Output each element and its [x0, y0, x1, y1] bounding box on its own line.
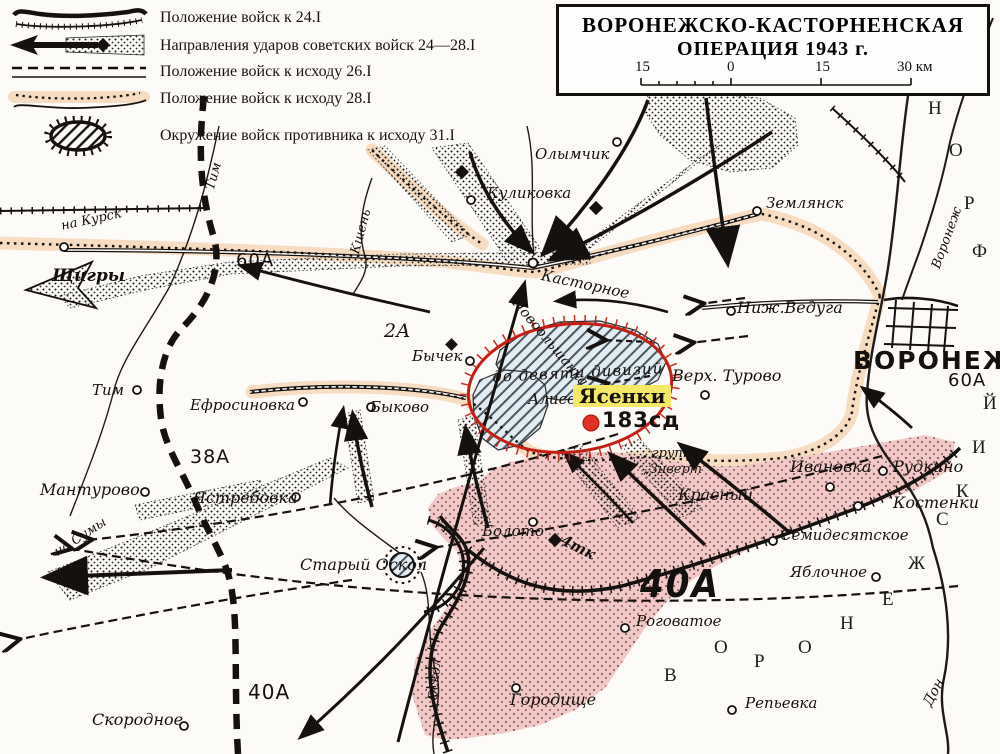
- front-name-letter: О: [949, 141, 963, 160]
- town-label-bychek: Бычек: [412, 349, 462, 364]
- town-label-shchigry: Щигры: [52, 268, 125, 285]
- front-name-letter: С: [936, 510, 949, 529]
- legend-label: Окружение войск противника к исходу 31.I: [154, 127, 455, 145]
- highlight-label-yasenki: Ясенки: [573, 385, 671, 407]
- front-name-letter: Р: [754, 652, 765, 671]
- front-name-letter: Е: [882, 590, 894, 609]
- town-label-yablochnoye: Яблочное: [790, 565, 867, 580]
- scale-tick-label: 0: [727, 59, 735, 76]
- town-label-stary-oskol: Старый Оскол: [300, 557, 427, 573]
- legend-label: Направления ударов советских войск 24—28…: [154, 37, 475, 55]
- symbol-strike-arrows: [6, 32, 154, 60]
- legend-row-strikes: Направления ударов советских войск 24—28…: [6, 32, 475, 60]
- town-label-ivanovka: Ивановка: [790, 459, 871, 475]
- front-name-letter: Н: [928, 99, 942, 118]
- scale-bar-ruler: [619, 77, 939, 91]
- town-label-verh-turovo: Верх. Турово: [672, 368, 781, 384]
- town-label-nizh-veduga: Ниж.Ведуга: [737, 300, 843, 316]
- map-canvas: Олымчик Куликовка Землянск Касторное Щиг…: [0, 0, 1000, 754]
- legend-row-encirclement-31: Окружение войск противника к исходу 31.I: [6, 116, 455, 156]
- scale-tick-label: 30 км: [897, 59, 933, 76]
- town-label-rudkino: Рудкино: [893, 459, 963, 475]
- town-label-zemlyansk: Землянск: [766, 196, 843, 211]
- front-name-letter: О: [798, 638, 812, 657]
- unit-label-gruppa-sievert-2: „Зиверт“: [643, 463, 709, 476]
- army-label-60a-left: 60А: [236, 252, 274, 270]
- town-label-manturovo: Мантурово: [40, 482, 140, 498]
- division-183-marker: [583, 415, 599, 431]
- town-label-alisovo: Алисо: [528, 392, 576, 407]
- town-label-yastrebovka: Ястребовка: [193, 490, 298, 506]
- front-name-letter: Р: [964, 194, 975, 213]
- army-label-38a: 38А: [190, 448, 230, 467]
- legend-label: Положение войск к исходу 28.I: [154, 90, 372, 108]
- scale-tick-label: 15: [815, 59, 830, 76]
- army-label-40a-main: 40А: [640, 565, 720, 603]
- symbol-position-26: [6, 59, 154, 85]
- voronezh-city-grid: [884, 298, 958, 352]
- town-label-efrosinovka: Ефросиновка: [190, 398, 295, 413]
- town-label-semidesyatskoye: Семидесятское: [780, 528, 909, 543]
- city-label-voronezh: ВОРОНЕЖ: [853, 348, 1000, 373]
- town-label-repyevka: Репьевка: [745, 696, 817, 711]
- town-label-kulikovka: Куликовка: [487, 186, 571, 201]
- front-name-letter: Ф: [972, 242, 987, 261]
- river-label-oskol: Оскол: [427, 658, 444, 701]
- town-label-gorodishche: Городище: [510, 692, 596, 708]
- town-label-tim: Тим: [92, 383, 124, 398]
- legend-row-position-26: Положение войск к исходу 26.I: [6, 59, 372, 85]
- scale-bar: 15 0 15 30 км: [619, 59, 939, 93]
- front-name-letter: Й: [983, 394, 997, 413]
- town-label-rogovatoye: Роговатое: [636, 614, 722, 629]
- front-name-letter: Н: [840, 614, 854, 633]
- army-label-40a-left: 40А: [248, 682, 290, 702]
- legend-row-position-28: Положение войск к исходу 28.I: [6, 85, 372, 113]
- map-title-line2: ОПЕРАЦИЯ 1943 г.: [559, 38, 987, 61]
- front-name-letter: В: [664, 666, 677, 685]
- town-label-boloto: Болото: [482, 524, 544, 539]
- town-label-olymchik: Олымчик: [535, 147, 609, 162]
- front-24I-dashed: [159, 96, 238, 754]
- map-title-line1: ВОРОНЕЖСКО-КАСТОРНЕНСКАЯ: [559, 13, 987, 38]
- map-title-box: ВОРОНЕЖСКО-КАСТОРНЕНСКАЯ ОПЕРАЦИЯ 1943 г…: [556, 4, 990, 96]
- unit-label-gruppa-sievert-1: группа: [652, 447, 699, 460]
- town-label-kostenki: Костенки: [893, 495, 979, 511]
- front-name-letter: И: [972, 438, 986, 457]
- town-label-skorodnoye: Скородное: [92, 712, 183, 728]
- unit-label-183sd: 183сд: [602, 410, 680, 431]
- town-label-krasny: Красный: [678, 487, 753, 503]
- scale-tick-label: 15: [635, 59, 650, 76]
- army-label-2a: 2А: [384, 322, 410, 341]
- front-name-letter: Ж: [908, 554, 925, 573]
- legend-row-position-24: Положение войск к 24.I: [6, 4, 321, 32]
- legend-label: Положение войск к исходу 26.I: [154, 63, 372, 81]
- symbol-position-24: [6, 4, 154, 32]
- symbol-encirclement-31: [6, 116, 154, 156]
- front-name-letter: О: [714, 638, 728, 657]
- town-label-bykovo: Быково: [370, 400, 429, 415]
- legend-label: Положение войск к 24.I: [154, 9, 321, 27]
- symbol-position-28: [6, 85, 154, 113]
